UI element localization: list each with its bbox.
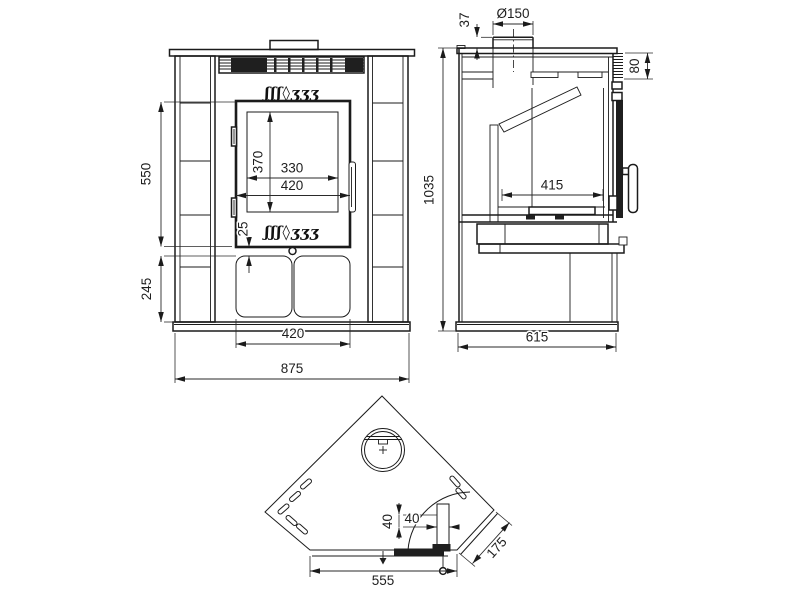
door-pivot-block [433,544,451,552]
dim-label-555: 555 [372,573,395,588]
dim-label-550: 550 [139,163,154,186]
dim-label-875: 875 [281,361,304,376]
pedestal [477,224,627,322]
top-plate-side [457,48,617,54]
door-clip-mid [612,93,622,101]
ash-door-left [236,256,292,317]
air-grille [219,57,364,73]
heat-exchanger-fins [614,54,624,78]
chimney-opening [362,429,405,472]
door-hinge-top [232,127,237,146]
dim-label-40-a: 40 [380,514,395,529]
firebox-back-insulation [490,125,498,222]
stove-technical-drawing: ʃʃʃ◊ʒʒʒ ʃʃʃ◊ʒʒʒ [0,0,800,600]
dim-label-80: 80 [627,58,642,73]
door-clip-top [612,82,622,89]
hearth-tray [462,207,613,220]
dim-label-415: 415 [541,178,564,193]
dim-label-420-door: 420 [281,178,304,193]
dim-label-245: 245 [139,278,154,301]
door-latch [609,196,617,210]
dim-label-330: 330 [281,161,304,176]
door-handle [349,162,356,212]
center-marker [380,558,387,565]
top-plate-front [170,50,415,57]
door-knob [289,248,296,255]
door-hinge-bottom [232,198,237,217]
flue-collar-front [270,41,318,50]
tile-column-right [368,56,408,322]
convection-vent-2 [578,72,602,78]
dim-label-25: 25 [236,221,251,236]
top-view-dimensions: 40 40 175 555 [310,503,512,588]
dim-label-flue-diameter: Ø150 [496,6,529,21]
technical-drawing-canvas: ʃʃʃ◊ʒʒʒ ʃʃʃ◊ʒʒʒ [0,0,800,600]
convection-vent-1 [531,72,558,78]
flue-pipe [493,29,533,88]
dim-label-1035: 1035 [422,175,437,205]
vent-slots-right [449,475,467,500]
open-door [437,504,449,549]
side-door-handle [623,165,638,213]
dim-label-40-b: 40 [404,511,419,526]
dim-label-370: 370 [251,151,266,174]
dim-label-615: 615 [526,330,549,345]
dim-label-175: 175 [484,534,510,561]
dim-label-37: 37 [457,12,472,27]
brand-logo-lower: ʃʃʃ◊ʒʒʒ [262,223,320,241]
smoke-baffle [499,87,581,132]
tile-column-left [175,56,215,322]
dim-label-420-base: 420 [282,326,305,341]
brand-logo-upper: ʃʃʃ◊ʒʒʒ [262,84,320,102]
top-view [265,396,498,574]
ash-door-right [294,256,350,317]
